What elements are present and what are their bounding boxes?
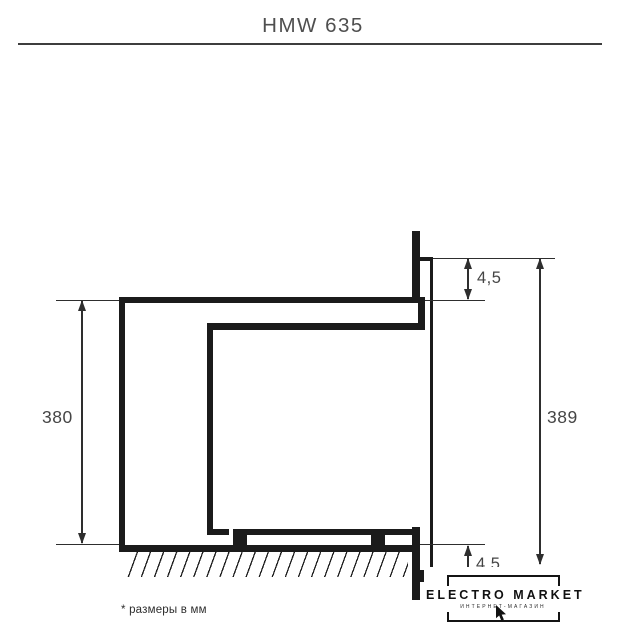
dim-389-arrow-up [536,258,544,269]
front-frame-upper-bar [412,231,420,303]
dim-45top-arrow-down [464,289,472,300]
dim-380-arrow-up [78,300,86,311]
niche-top-line [119,297,425,303]
dim-380-ext-bottom [56,544,119,545]
front-frame-lower-bar [412,527,420,600]
dim-45bot-ext-top [420,544,485,545]
dim-380-arrow-down [78,533,86,544]
mouse-cursor-icon [495,605,508,627]
oven-foot-right [371,529,385,550]
dim-389-arrow-down [536,554,544,565]
dim-389-label: 389 [547,407,578,428]
title-divider [18,43,602,45]
electro-market-logo: ELECTRO MARKET ИНТЕРНЕТ-МАГАЗИН [426,567,580,640]
dim-45top-arrow-up [464,258,472,269]
oven-top-line [207,323,425,330]
oven-front-line [207,323,213,535]
units-footnote: * размеры в мм [121,604,207,616]
dim-45top-ext-bottom [425,300,485,301]
dim-45bot-arrow-up [464,545,472,556]
dim-389-line [539,259,540,564]
dim-45top-label: 4,5 [477,269,501,288]
cabinet-front-edge-line [430,257,433,567]
dim-380-line [81,301,82,543]
page-title: HMW 635 [0,14,626,38]
dim-380-label: 380 [42,407,73,428]
logo-title: ELECTRO MARKET [426,588,580,602]
ground-hatching [125,552,408,577]
dim-380-ext-top [56,300,119,301]
front-frame-lower-step [420,570,424,582]
oven-foot-left [233,529,247,550]
installation-diagram-page: HMW 635 380 4,5 389 4,5 * размеры в мм [0,0,626,640]
niche-left-line [119,297,125,552]
